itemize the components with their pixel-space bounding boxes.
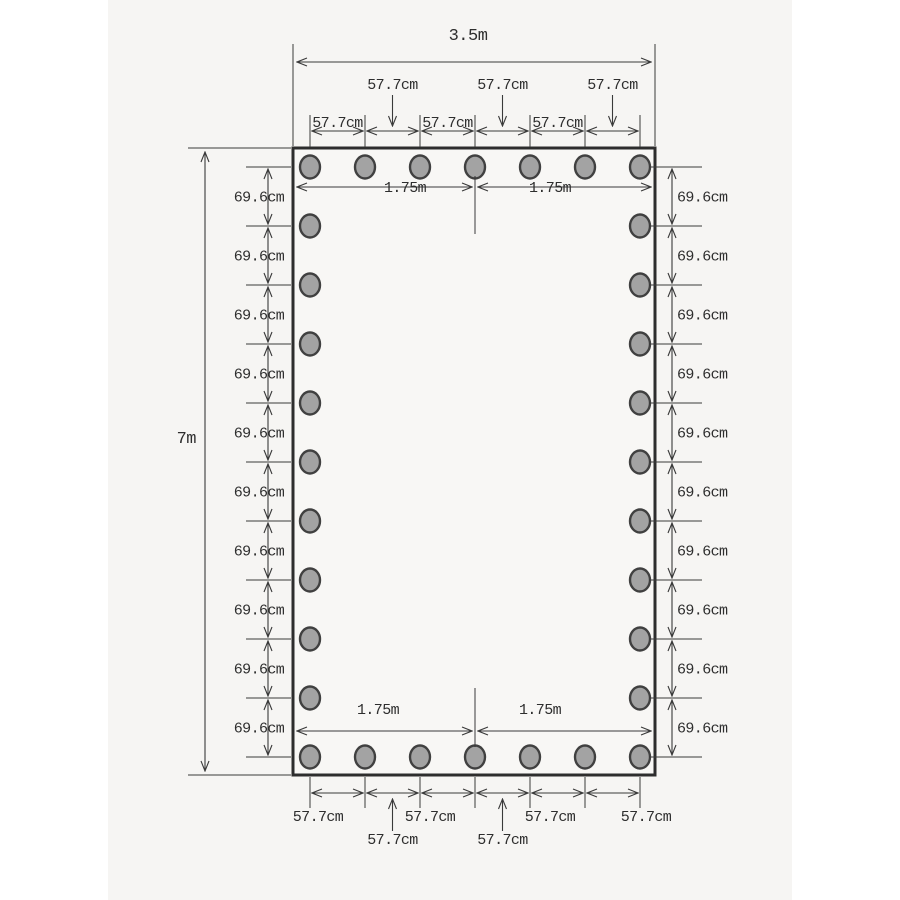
grommet-left	[300, 392, 320, 415]
grommet-top	[355, 156, 375, 179]
grommet-top	[630, 156, 650, 179]
right-gap-label: 69.6cm	[677, 308, 728, 325]
right-gap-label: 69.6cm	[677, 190, 728, 207]
grommet-bottom	[355, 746, 375, 769]
top-leader-label: 57.7cm	[587, 77, 638, 94]
right-gap-label: 69.6cm	[677, 426, 728, 443]
right-gap-label: 69.6cm	[677, 485, 728, 502]
top-gap-label: 57.7cm	[532, 115, 583, 132]
bottom-half-span-label: 1.75m	[357, 702, 400, 719]
right-gap-label: 69.6cm	[677, 544, 728, 561]
left-gap-label: 69.6cm	[234, 249, 285, 266]
grommet-left	[300, 215, 320, 238]
grommet-left	[300, 333, 320, 356]
top-leader-label: 57.7cm	[477, 77, 528, 94]
bottom-gap-label: 57.7cm	[405, 809, 456, 826]
right-gap-label: 69.6cm	[677, 721, 728, 738]
grommet-right	[630, 628, 650, 651]
overall-width-label: 3.5m	[449, 27, 488, 46]
grommet-bottom	[630, 746, 650, 769]
bottom-leader-label: 57.7cm	[367, 832, 418, 849]
overall-height-label: 7m	[177, 430, 197, 449]
left-gap-label: 69.6cm	[234, 721, 285, 738]
grommet-right	[630, 215, 650, 238]
grommet-left	[300, 687, 320, 710]
grommet-bottom	[520, 746, 540, 769]
grommet-bottom	[575, 746, 595, 769]
bottom-half-span-label: 1.75m	[519, 702, 562, 719]
top-leader-label: 57.7cm	[367, 77, 418, 94]
grommet-top	[465, 156, 485, 179]
left-gap-label: 69.6cm	[234, 662, 285, 679]
right-gap-label: 69.6cm	[677, 249, 728, 266]
top-half-span-label: 1.75m	[529, 180, 572, 197]
top-gap-label: 57.7cm	[422, 115, 473, 132]
left-gap-label: 69.6cm	[234, 190, 285, 207]
left-gap-label: 69.6cm	[234, 308, 285, 325]
grommet-left	[300, 628, 320, 651]
right-gap-label: 69.6cm	[677, 603, 728, 620]
bottom-gap-label: 57.7cm	[293, 809, 344, 826]
grommet-left	[300, 510, 320, 533]
right-gap-label: 69.6cm	[677, 662, 728, 679]
grommet-top	[575, 156, 595, 179]
grommet-right	[630, 392, 650, 415]
top-gap-label: 57.7cm	[312, 115, 363, 132]
grommet-bottom	[410, 746, 430, 769]
grommet-right	[630, 274, 650, 297]
tarp-outline	[293, 148, 655, 775]
left-gap-label: 69.6cm	[234, 603, 285, 620]
top-half-span-label: 1.75m	[384, 180, 427, 197]
grommet-top	[410, 156, 430, 179]
left-gap-label: 69.6cm	[234, 544, 285, 561]
grommet-left	[300, 451, 320, 474]
grommet-top	[300, 156, 320, 179]
tarp-dimension-diagram: 3.5m7m57.7cm57.7cm57.7cm57.7cm57.7cm57.7…	[0, 0, 900, 900]
bottom-gap-label: 57.7cm	[525, 809, 576, 826]
grommet-right	[630, 510, 650, 533]
grommet-right	[630, 451, 650, 474]
grommet-bottom	[465, 746, 485, 769]
grommet-right	[630, 687, 650, 710]
bottom-leader-label: 57.7cm	[477, 832, 528, 849]
grommet-right	[630, 569, 650, 592]
bottom-gap-label: 57.7cm	[621, 809, 672, 826]
grommet-left	[300, 274, 320, 297]
grommet-top	[520, 156, 540, 179]
screenshot-root: 3.5m7m57.7cm57.7cm57.7cm57.7cm57.7cm57.7…	[0, 0, 900, 900]
grommet-left	[300, 569, 320, 592]
left-gap-label: 69.6cm	[234, 485, 285, 502]
grommet-right	[630, 333, 650, 356]
left-gap-label: 69.6cm	[234, 367, 285, 384]
left-gap-label: 69.6cm	[234, 426, 285, 443]
right-gap-label: 69.6cm	[677, 367, 728, 384]
grommet-bottom	[300, 746, 320, 769]
